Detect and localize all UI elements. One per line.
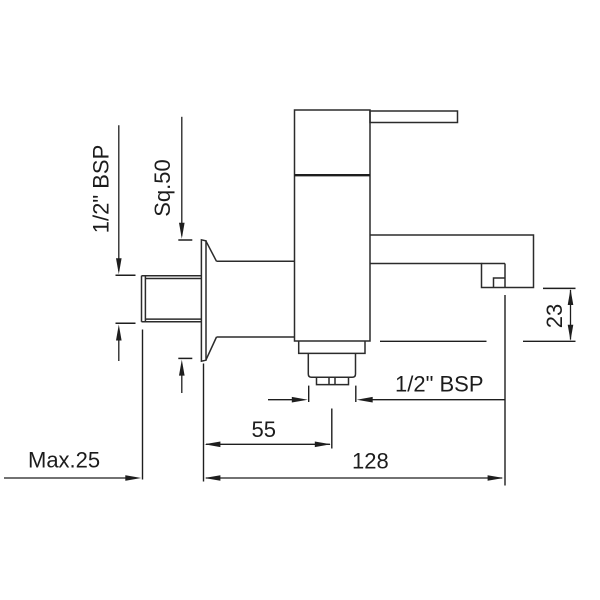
svg-text:Sq.50: Sq.50 [150, 159, 175, 217]
svg-text:23: 23 [542, 304, 567, 328]
svg-text:1/2" BSP: 1/2" BSP [395, 372, 484, 397]
svg-text:Max.25: Max.25 [28, 448, 100, 473]
svg-text:1/2" BSP: 1/2" BSP [89, 145, 114, 234]
svg-text:55: 55 [252, 417, 276, 442]
svg-text:128: 128 [352, 449, 389, 474]
